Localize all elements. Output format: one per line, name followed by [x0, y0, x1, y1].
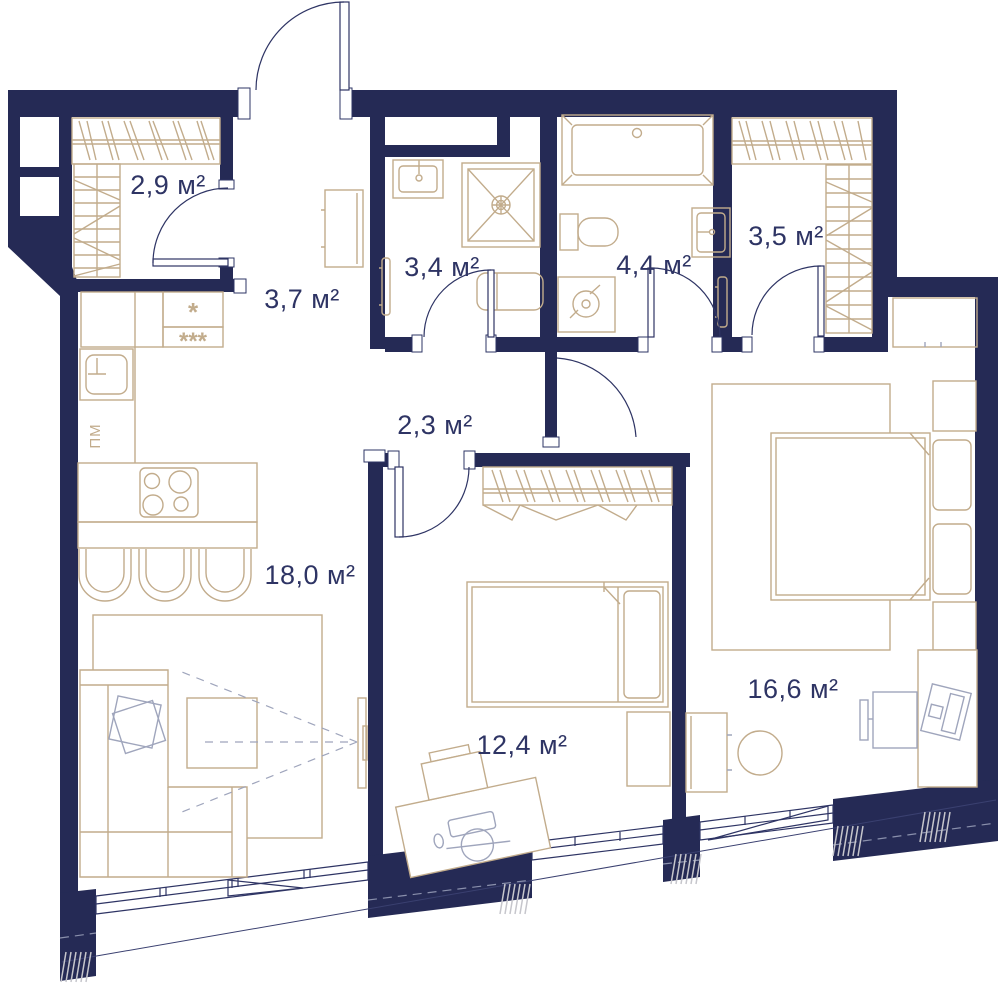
- bath-small-sink: [393, 160, 443, 198]
- kitchen-cabinet: [81, 292, 163, 347]
- wardrobe-door: [752, 266, 824, 336]
- window-master: [700, 805, 833, 840]
- entry-door: [256, 2, 349, 90]
- master-wardrobe: [893, 298, 977, 347]
- kitchen-counter: [78, 292, 257, 548]
- closet-shelves: [74, 164, 120, 277]
- washing-machine: [558, 277, 615, 332]
- master-pillows: [933, 440, 971, 594]
- master-pouf: [738, 731, 782, 775]
- toilet: [560, 214, 618, 250]
- room-label-bedroom: 12,4 м²: [476, 730, 567, 760]
- appliance-labels: ПМ * ***: [87, 297, 208, 449]
- room-label-wardrobe: 3,5 м²: [748, 221, 824, 251]
- window-bedroom: [532, 826, 663, 860]
- coffee-table: [187, 698, 257, 768]
- room-label-corridor: 2,3 м²: [397, 410, 473, 440]
- furniture: [72, 115, 977, 878]
- bedroom-bed: [467, 582, 668, 707]
- bath-large-sink: [692, 208, 730, 257]
- master-bed: [771, 433, 930, 600]
- bar-stools: [79, 549, 251, 601]
- hall-console: [321, 190, 363, 267]
- bedroom-nightstand: [627, 712, 670, 786]
- master-dresser: [686, 713, 732, 792]
- room-label-bathroom-small: 3,4 м²: [404, 252, 480, 282]
- floor-plan: 2,9 м² 3,7 м² 3,4 м² 4,4 м² 3,5 м² 2,3 м…: [0, 0, 1000, 1000]
- fridge-three-star-symbol: ***: [179, 328, 208, 355]
- room-label-bathroom-large: 4,4 м²: [616, 250, 692, 280]
- closet-hanger-rail: [72, 118, 220, 164]
- room-label-closet: 2,9 м²: [130, 170, 206, 200]
- wardrobe-shelves: [826, 165, 872, 333]
- wardrobe-hanger-rail: [732, 118, 872, 164]
- bathtub: [562, 115, 713, 185]
- room-label-hallway: 3,7 м²: [264, 284, 340, 314]
- master-desk: [860, 650, 977, 787]
- room-label-master: 16,6 м²: [747, 674, 838, 704]
- room-label-kitchen-living: 18,0 м²: [264, 560, 355, 590]
- window-opening-marker: [708, 806, 828, 840]
- dishwasher-label: ПМ: [87, 423, 104, 448]
- stove: [140, 468, 198, 517]
- kitchen-sink: [80, 349, 133, 400]
- fridge-star-symbol: *: [188, 297, 199, 327]
- shower: [462, 163, 540, 247]
- master-nightstand-top: [933, 381, 976, 431]
- bedroom-wardrobe: [483, 467, 672, 520]
- master-nightstand-bottom: [933, 602, 976, 650]
- tv: [358, 698, 367, 788]
- bath-small-bench: [477, 273, 543, 310]
- floor-plan-drawing: 2,9 м² 3,7 м² 3,4 м² 4,4 м² 3,5 м² 2,3 м…: [0, 0, 1000, 1000]
- master-door: [557, 358, 636, 437]
- bedroom-door: [395, 467, 469, 537]
